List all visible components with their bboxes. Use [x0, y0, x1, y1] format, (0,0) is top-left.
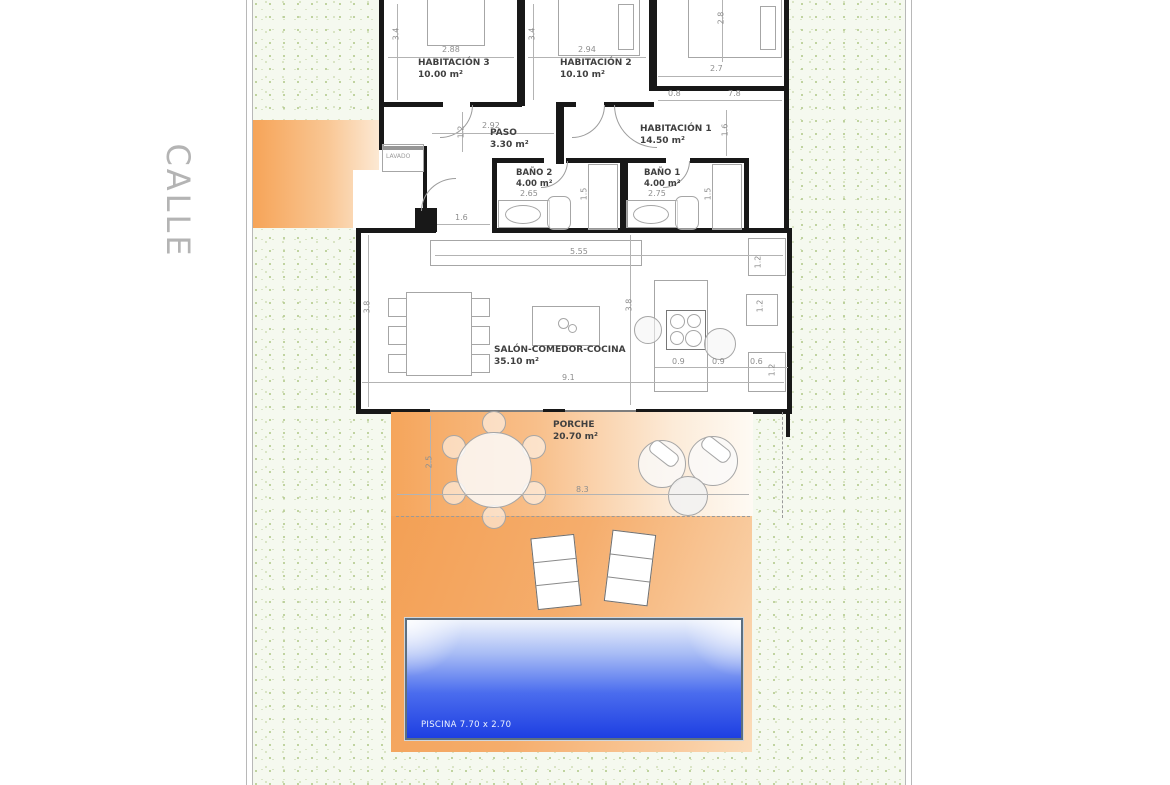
- dim-label: 7.8: [728, 90, 741, 98]
- plot-boundary-left-outer: [246, 0, 247, 785]
- dim-line: [362, 382, 784, 383]
- dim-label: 1.2: [457, 126, 465, 139]
- person-figure: [634, 316, 662, 344]
- laundry-label: LAVADO: [386, 154, 410, 160]
- wall: [649, 0, 657, 90]
- wall: [517, 0, 525, 106]
- dining-chair: [388, 326, 407, 345]
- dim-label: 1.2: [754, 256, 762, 269]
- room-label-porche: PORCHE20.70 m²: [553, 420, 598, 443]
- dim-label: 1.6: [721, 124, 729, 137]
- wall: [624, 158, 666, 163]
- shower: [712, 164, 742, 230]
- plot-boundary-right-outer: [911, 0, 912, 785]
- burner: [687, 314, 701, 328]
- wall: [556, 102, 564, 164]
- dim-label: 0.9: [672, 358, 685, 366]
- entry-floor: [353, 170, 387, 230]
- wall: [356, 228, 361, 414]
- side-table: [668, 476, 708, 516]
- dim-label: 1.2: [768, 364, 776, 377]
- wall: [566, 158, 624, 163]
- dim-line: [435, 255, 783, 256]
- decor-item: [568, 324, 577, 333]
- wall: [784, 0, 789, 232]
- plot-boundary-right-inner: [905, 0, 906, 785]
- dim-label: 5.55: [570, 248, 588, 256]
- street-label: CALLE: [159, 141, 197, 261]
- dim-label: 0.6: [750, 358, 763, 366]
- sun-lounger: [604, 530, 656, 607]
- dim-label: 2.65: [520, 190, 538, 198]
- plot-boundary-left-inner: [252, 0, 253, 785]
- toilet: [675, 196, 699, 230]
- wall: [787, 228, 792, 414]
- room-label-bano2: BAÑO 24.00 m²: [516, 168, 553, 190]
- room-label-salon: SALÓN-COMEDOR-COCINA35.10 m²: [494, 345, 626, 368]
- dining-chair: [388, 354, 407, 373]
- dining-chair: [471, 298, 490, 317]
- room-label-bano1: BAÑO 14.00 m²: [644, 168, 681, 190]
- dim-label: 2.88: [442, 46, 460, 54]
- dining-table: [406, 292, 472, 376]
- dim-line: [397, 4, 398, 100]
- wall: [492, 158, 544, 163]
- room-label-habitacion3: HABITACIÓN 310.00 m²: [418, 58, 490, 81]
- porch-dashed-boundary-right: [782, 412, 783, 518]
- swimming-pool: PISCINA 7.70 x 2.70: [405, 618, 743, 740]
- dim-label: 0.9: [712, 358, 725, 366]
- sink-basin: [633, 205, 669, 224]
- dim-label: 2.94: [578, 46, 596, 54]
- dim-label: 3.8: [625, 299, 633, 312]
- bed: [427, 0, 485, 46]
- burner: [685, 330, 702, 347]
- wall: [356, 228, 436, 233]
- dim-line: [397, 494, 749, 495]
- dim-line: [368, 235, 369, 407]
- dim-label: 0.8: [668, 90, 681, 98]
- dim-label: 1.2: [756, 300, 764, 313]
- wall: [748, 409, 790, 414]
- dim-label: 3.4: [392, 28, 400, 41]
- porch-chair: [482, 505, 506, 529]
- burner: [670, 314, 685, 329]
- pool-label: PISCINA 7.70 x 2.70: [421, 720, 511, 730]
- wall: [492, 158, 497, 232]
- dim-label: 2.8: [717, 12, 725, 25]
- wall: [786, 409, 790, 437]
- dim-line: [437, 224, 490, 225]
- room-label-habitacion1: HABITACIÓN 114.50 m²: [640, 124, 712, 147]
- dim-label: 8.3: [576, 486, 589, 494]
- dim-line: [630, 235, 631, 405]
- dim-label: 2.5: [425, 456, 433, 469]
- shower: [588, 164, 618, 230]
- dim-label: 1.5: [704, 188, 712, 201]
- dim-line: [722, 0, 723, 62]
- burner: [670, 331, 684, 345]
- kitchen-counter: [430, 240, 642, 266]
- porch-round-table: [456, 432, 532, 508]
- dim-label: 1.5: [580, 188, 588, 201]
- wall: [470, 102, 522, 107]
- dim-label: 2.75: [648, 190, 666, 198]
- bed-pillow: [618, 4, 634, 50]
- wall: [690, 158, 744, 163]
- dim-label: 9.1: [562, 374, 575, 382]
- dim-label: 3.4: [528, 28, 536, 41]
- room-label-paso: PASO3.30 m²: [490, 128, 529, 151]
- person-figure: [704, 328, 736, 360]
- floor-plan: CALLE: [0, 0, 1170, 785]
- sun-lounger: [530, 534, 581, 610]
- toilet: [547, 196, 571, 230]
- dim-line: [533, 4, 534, 100]
- dim-label: 3.8: [363, 301, 371, 314]
- wall: [379, 0, 384, 150]
- dim-label: 1.6: [455, 214, 468, 222]
- wall: [744, 158, 749, 232]
- bed-pillow: [760, 6, 776, 50]
- wall: [379, 102, 443, 107]
- sink-basin: [505, 205, 541, 224]
- room-label-habitacion2: HABITACIÓN 210.10 m²: [560, 58, 632, 81]
- dining-chair: [388, 298, 407, 317]
- porch-dashed-boundary: [396, 516, 750, 517]
- dim-line: [658, 76, 782, 77]
- dim-label: 2.7: [710, 65, 723, 73]
- dining-chair: [471, 326, 490, 345]
- dining-chair: [471, 354, 490, 373]
- dim-line: [658, 100, 782, 101]
